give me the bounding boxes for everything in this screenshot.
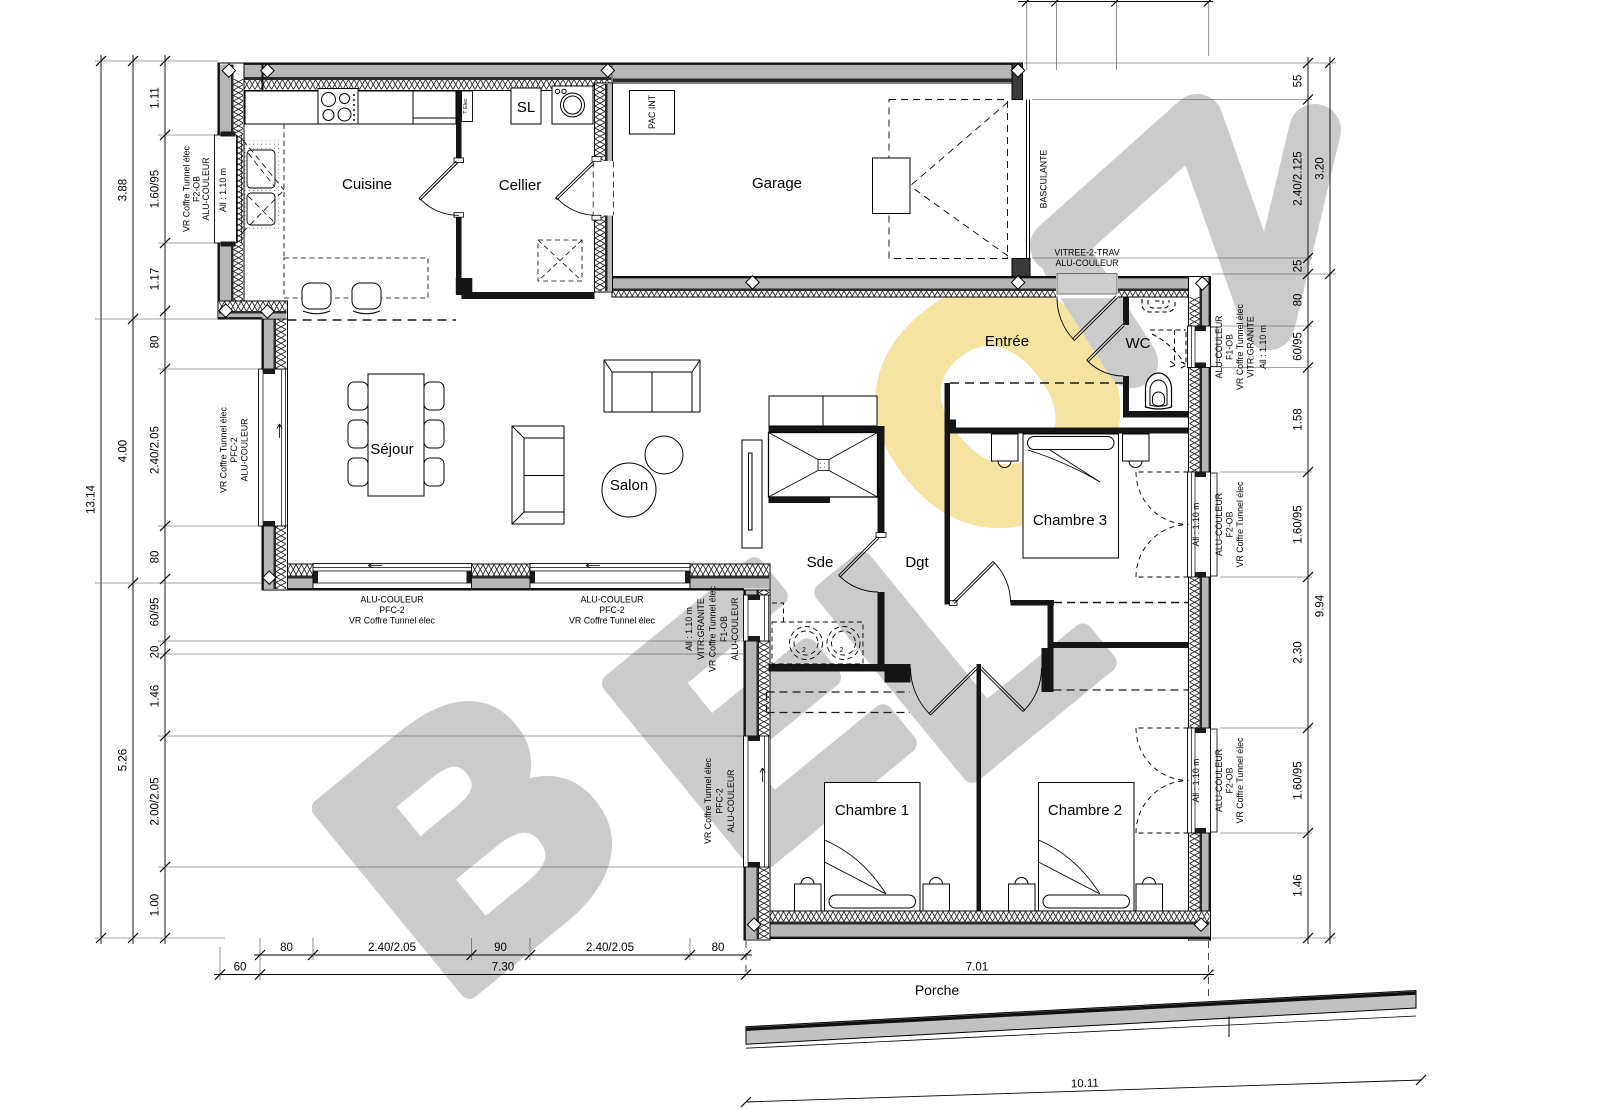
svg-text:80: 80 bbox=[150, 336, 162, 349]
svg-text:1.60/95: 1.60/95 bbox=[1293, 505, 1305, 543]
svg-text:F2-OB: F2-OB bbox=[1225, 767, 1235, 793]
svg-text:Séjour: Séjour bbox=[370, 441, 413, 458]
svg-text:All : 1.10 m: All : 1.10 m bbox=[218, 168, 228, 212]
svg-text:VR Coffre Tunnel élec: VR Coffre Tunnel élec bbox=[703, 757, 713, 843]
svg-text:ALU-COULEUR: ALU-COULEUR bbox=[726, 769, 736, 832]
svg-text:1.46: 1.46 bbox=[1293, 874, 1305, 896]
svg-text:VR Coffre Tunnel élec: VR Coffre Tunnel élec bbox=[349, 616, 435, 626]
svg-text:ALU-COULEUR: ALU-COULEUR bbox=[1214, 493, 1224, 556]
svg-text:5.26: 5.26 bbox=[118, 749, 130, 771]
svg-text:VR Coffre Tunnel élec: VR Coffre Tunnel élec bbox=[1235, 737, 1245, 823]
svg-text:PFC-2: PFC-2 bbox=[715, 788, 725, 814]
svg-text:1.11: 1.11 bbox=[150, 87, 162, 109]
svg-text:9.94: 9.94 bbox=[1315, 594, 1327, 617]
svg-text:Porche: Porche bbox=[915, 982, 960, 998]
svg-text:Chambre 1: Chambre 1 bbox=[835, 802, 909, 819]
svg-text:10.11: 10.11 bbox=[1071, 1078, 1099, 1091]
svg-text:4.00: 4.00 bbox=[118, 440, 130, 462]
svg-text:13.14: 13.14 bbox=[86, 485, 98, 514]
svg-text:PAC INT: PAC INT bbox=[647, 94, 657, 129]
svg-text:1.46: 1.46 bbox=[150, 685, 162, 707]
svg-text:55: 55 bbox=[1293, 75, 1305, 88]
svg-text:80: 80 bbox=[150, 551, 162, 564]
svg-text:ALU-COULEUR: ALU-COULEUR bbox=[1214, 749, 1224, 812]
svg-text:PFC-2: PFC-2 bbox=[599, 605, 625, 615]
svg-text:2.30: 2.30 bbox=[1293, 641, 1305, 663]
svg-text:80: 80 bbox=[1293, 294, 1305, 307]
svg-text:1.60/95: 1.60/95 bbox=[150, 170, 162, 208]
svg-text:80: 80 bbox=[712, 942, 725, 954]
svg-text:1.17: 1.17 bbox=[150, 268, 162, 290]
svg-text:2.40/2.05: 2.40/2.05 bbox=[586, 942, 634, 954]
svg-text:60: 60 bbox=[234, 962, 247, 974]
svg-text:All : 1.10 m: All : 1.10 m bbox=[1191, 502, 1201, 546]
svg-text:2: 2 bbox=[840, 647, 844, 654]
svg-text:Sde: Sde bbox=[807, 554, 834, 571]
svg-text:ALU-COULEUR: ALU-COULEUR bbox=[1055, 258, 1118, 268]
svg-text:Garage: Garage bbox=[752, 175, 802, 192]
svg-text:VITR:GRANITE: VITR:GRANITE bbox=[696, 598, 706, 660]
svg-text:VR Coffre Tunnel élec: VR Coffre Tunnel élec bbox=[1235, 303, 1245, 389]
svg-text:Salon: Salon bbox=[610, 477, 648, 494]
svg-text:25: 25 bbox=[1293, 260, 1305, 273]
svg-text:ALU-COULEUR: ALU-COULEUR bbox=[201, 157, 211, 220]
svg-text:1.60/95: 1.60/95 bbox=[1293, 761, 1305, 799]
svg-text:All : 1.10 m: All : 1.10 m bbox=[1191, 758, 1201, 802]
svg-text:ALU-COULEUR: ALU-COULEUR bbox=[360, 595, 423, 605]
svg-text:VITR:GRANITE: VITR:GRANITE bbox=[1246, 316, 1256, 378]
svg-text:1.00: 1.00 bbox=[150, 894, 162, 916]
svg-text:1.58: 1.58 bbox=[1293, 408, 1305, 430]
svg-text:3.88: 3.88 bbox=[118, 179, 130, 201]
svg-text:SL: SL bbox=[517, 99, 535, 116]
svg-text:VR Coffre Tunnel élec: VR Coffre Tunnel élec bbox=[1235, 481, 1245, 567]
svg-text:F2-OB: F2-OB bbox=[192, 176, 202, 202]
svg-text:2: 2 bbox=[802, 647, 806, 654]
svg-text:VR Coffre Tunnel élec: VR Coffre Tunnel élec bbox=[708, 585, 718, 671]
svg-text:ALU-COULEUR: ALU-COULEUR bbox=[730, 597, 740, 660]
svg-text:BASCULANTE: BASCULANTE bbox=[1039, 150, 1049, 209]
svg-text:Chambre 3: Chambre 3 bbox=[1033, 512, 1107, 529]
svg-text:ALU-COULEUR: ALU-COULEUR bbox=[240, 418, 250, 481]
svg-text:ALU-COULEUR: ALU-COULEUR bbox=[580, 595, 643, 605]
svg-text:Cuisine: Cuisine bbox=[342, 176, 392, 193]
svg-text:F1-OB: F1-OB bbox=[719, 616, 729, 642]
svg-text:80: 80 bbox=[280, 942, 293, 954]
svg-text:7.01: 7.01 bbox=[966, 962, 988, 974]
svg-text:2.40/2.125: 2.40/2.125 bbox=[1293, 151, 1305, 205]
svg-text:60/95: 60/95 bbox=[150, 598, 162, 627]
svg-text:VITREE-2-TRAV: VITREE-2-TRAV bbox=[1054, 248, 1119, 258]
svg-text:7.30: 7.30 bbox=[492, 962, 514, 974]
svg-text:All : 1.10 m: All : 1.10 m bbox=[684, 607, 694, 651]
svg-text:60/95: 60/95 bbox=[1293, 332, 1305, 361]
svg-text:All : 1.10 m: All : 1.10 m bbox=[1258, 325, 1268, 369]
svg-text:3.20: 3.20 bbox=[1315, 157, 1327, 179]
svg-text:F1-OB: F1-OB bbox=[1225, 334, 1235, 360]
svg-text:PFC-2: PFC-2 bbox=[379, 605, 405, 615]
svg-text:WC: WC bbox=[1126, 335, 1151, 352]
svg-text:F2-OB: F2-OB bbox=[1225, 511, 1235, 537]
svg-text:2.40/2.05: 2.40/2.05 bbox=[150, 426, 162, 474]
svg-text:90: 90 bbox=[494, 942, 507, 954]
svg-text:VR Coffre Tunnel élec: VR Coffre Tunnel élec bbox=[219, 406, 229, 492]
svg-text:2.00/2.05: 2.00/2.05 bbox=[150, 778, 162, 826]
svg-text:ALU-COULEUR: ALU-COULEUR bbox=[1214, 315, 1224, 378]
svg-text:20: 20 bbox=[150, 646, 162, 659]
svg-text:VR Coffre Tunnel élec: VR Coffre Tunnel élec bbox=[182, 145, 192, 231]
svg-text:2.40/2.05: 2.40/2.05 bbox=[368, 942, 416, 954]
svg-text:Cellier: Cellier bbox=[499, 177, 542, 194]
svg-text:Chambre 2: Chambre 2 bbox=[1048, 802, 1122, 819]
svg-text:Entrée: Entrée bbox=[985, 333, 1029, 350]
svg-text:Dgt: Dgt bbox=[905, 554, 929, 571]
svg-text:T Elec: T Elec bbox=[463, 98, 469, 114]
svg-text:VR Coffre Tunnel élec: VR Coffre Tunnel élec bbox=[569, 616, 655, 626]
svg-text:PFC-2: PFC-2 bbox=[229, 437, 239, 463]
